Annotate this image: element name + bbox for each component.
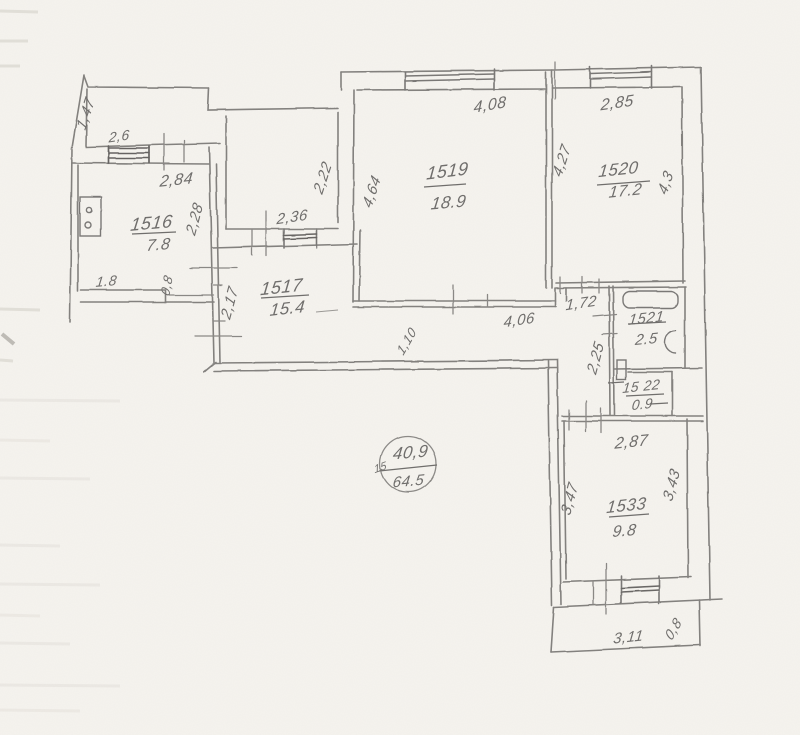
svg-text:2.5: 2.5 — [633, 330, 659, 349]
svg-text:1.8: 1.8 — [95, 272, 118, 290]
svg-text:1516: 1516 — [129, 211, 174, 235]
svg-text:15.4: 15.4 — [269, 296, 306, 320]
svg-text:40,9: 40,9 — [392, 440, 430, 463]
svg-text:17.2: 17.2 — [608, 180, 643, 202]
svg-text:3,11: 3,11 — [612, 627, 644, 647]
svg-text:2,6: 2,6 — [107, 126, 130, 145]
svg-text:2,87: 2,87 — [613, 431, 650, 453]
svg-text:7.8: 7.8 — [146, 235, 172, 255]
svg-text:9.8: 9.8 — [612, 521, 638, 541]
svg-text:64.5: 64.5 — [392, 472, 426, 492]
svg-text:18.9: 18.9 — [430, 190, 468, 213]
svg-text:2,84: 2,84 — [158, 169, 194, 191]
